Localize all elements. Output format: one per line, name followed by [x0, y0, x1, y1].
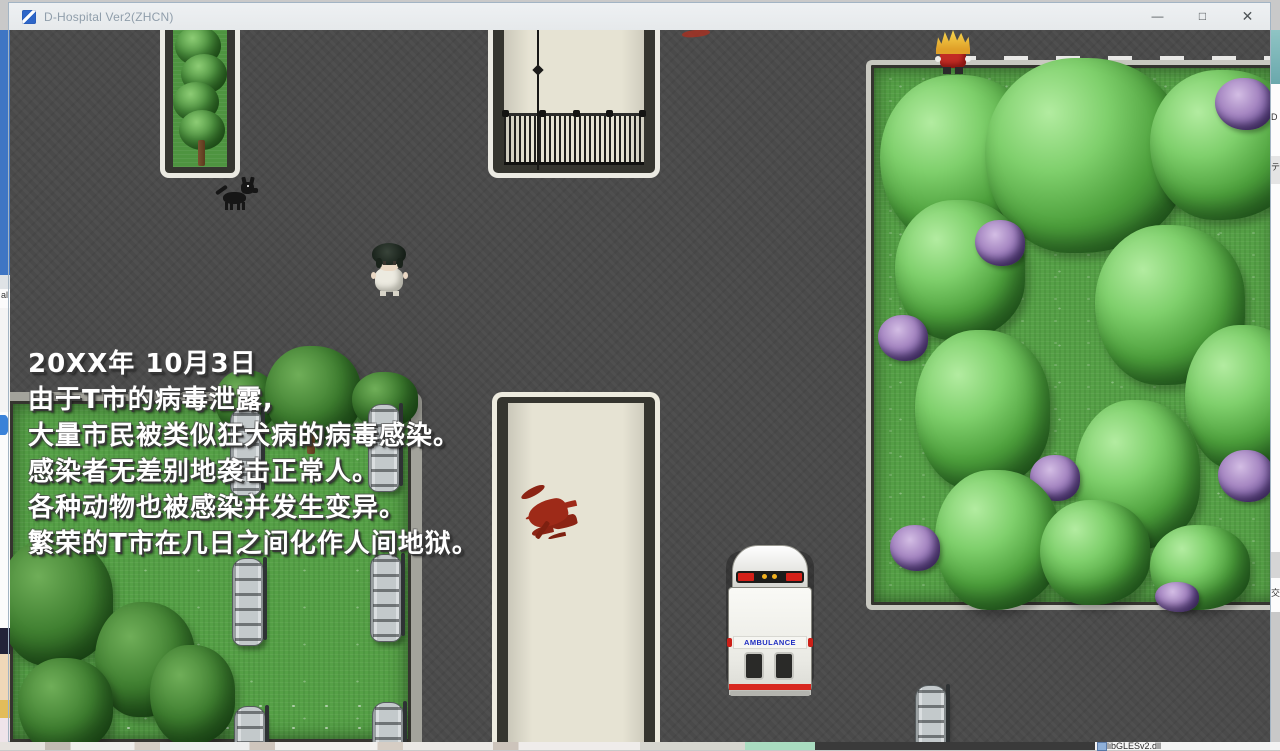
background-band — [640, 742, 745, 750]
ambulance-lightbar — [736, 571, 804, 583]
tree-sprite — [18, 658, 113, 742]
fence-knob — [539, 110, 546, 117]
girl-eye — [383, 261, 386, 265]
story-line: 20XX年 10月3日 — [28, 346, 479, 382]
background-art-strip — [0, 742, 640, 750]
guardrail — [370, 554, 402, 642]
path-floor — [508, 403, 644, 742]
girl-arm — [403, 272, 408, 279]
fence-knob — [606, 110, 613, 117]
background-dark-panel — [815, 742, 1095, 750]
dog-ear — [241, 177, 246, 185]
background-band — [1270, 552, 1280, 578]
girl-foot — [380, 291, 386, 296]
right-edge-char-bottom: 交 — [1271, 586, 1280, 599]
blood-splatter — [518, 486, 582, 544]
man-leg — [943, 67, 951, 74]
fence-knob — [573, 110, 580, 117]
story-line: 感染者无差别地袭击正常人。 — [28, 454, 479, 490]
background-image-teal — [1270, 30, 1280, 84]
man-leg — [955, 67, 963, 74]
purple-bush — [1155, 582, 1199, 612]
game-viewport[interactable]: AMBULANCE — [10, 30, 1270, 742]
dog-leg — [225, 202, 228, 210]
girl-hair-side — [397, 258, 403, 268]
man-spiky-hair — [936, 30, 970, 54]
desktop-bottom-strip — [0, 742, 1280, 750]
tree-sprite — [1040, 500, 1150, 605]
infected-red-man-sprite — [933, 30, 973, 82]
background-band — [1270, 612, 1280, 742]
story-line: 由于T市的病毒泄露, — [28, 382, 479, 418]
girl-eye — [393, 261, 396, 265]
story-line: 大量市民被类似狂犬病的病毒感染。 — [28, 418, 479, 454]
titlebar[interactable]: D-Hospital Ver2(ZHCN) — □ ✕ — [9, 3, 1270, 30]
fence-knob — [639, 110, 646, 117]
guardrail — [372, 702, 404, 742]
story-line: 各种动物也被感染并发生变异。 — [28, 490, 479, 526]
fence-knob — [502, 110, 509, 117]
dog-leg — [242, 202, 245, 210]
courtyard-enclosure — [488, 30, 660, 178]
rpg-maker-game-icon — [22, 10, 36, 24]
maximize-button[interactable]: □ — [1180, 3, 1225, 29]
survivor-girl-sprite — [368, 242, 412, 300]
guardrail — [234, 706, 266, 742]
left-edge-text: al — [1, 290, 8, 300]
dog-eye — [247, 185, 249, 187]
background-selection-green — [745, 742, 815, 750]
girl-gown — [375, 268, 403, 292]
man-hand — [965, 56, 971, 62]
black-dog-sprite — [213, 175, 261, 215]
dog-leg — [230, 202, 233, 210]
ambulance-rear-window — [744, 652, 764, 680]
purple-bush — [975, 220, 1025, 266]
window-controls: — □ ✕ — [1135, 3, 1270, 30]
guardrail — [232, 558, 264, 646]
planter-tree-trunk — [198, 140, 205, 166]
ambulance: AMBULANCE — [722, 545, 818, 697]
purple-bush — [878, 315, 928, 361]
right-edge-char-mid: テ — [1271, 160, 1280, 173]
minimize-button[interactable]: — — [1135, 3, 1180, 29]
dog-leg — [237, 202, 240, 210]
desktop-right-strip: D テ 交 — [1270, 30, 1280, 742]
iron-gate-fence — [504, 113, 644, 165]
purple-bush — [1218, 450, 1270, 502]
planter-grass — [173, 30, 227, 167]
blood-smear — [682, 30, 711, 38]
girl-foot — [393, 291, 399, 296]
tree-sprite — [150, 645, 235, 742]
ambulance-tail-bumper — [730, 691, 810, 696]
window-title: D-Hospital Ver2(ZHCN) — [44, 10, 174, 24]
ambulance-body: AMBULANCE — [728, 587, 812, 691]
close-button[interactable]: ✕ — [1225, 3, 1270, 29]
man-hand — [935, 56, 941, 62]
ambulance-label: AMBULANCE — [733, 636, 807, 649]
dog-ear — [249, 177, 254, 185]
planter-enclosure — [160, 30, 240, 178]
ambulance-rear-window — [774, 652, 794, 680]
path-enclosure — [492, 392, 660, 742]
guardrail — [915, 685, 947, 742]
purple-bush — [890, 525, 940, 571]
right-edge-char-top: D — [1271, 112, 1278, 122]
lamp-post — [537, 30, 539, 170]
purple-bush — [1215, 78, 1270, 130]
girl-hair-side — [376, 258, 382, 268]
tree-sprite — [915, 330, 1050, 490]
dog-snout — [252, 188, 258, 193]
girl-arm — [371, 272, 376, 279]
story-line: 繁荣的T市在几日之间化作人间地狱。 — [28, 526, 479, 562]
story-text-overlay: 20XX年 10月3日 由于T市的病毒泄露, 大量市民被类似狂犬病的病毒感染。 … — [28, 346, 479, 562]
